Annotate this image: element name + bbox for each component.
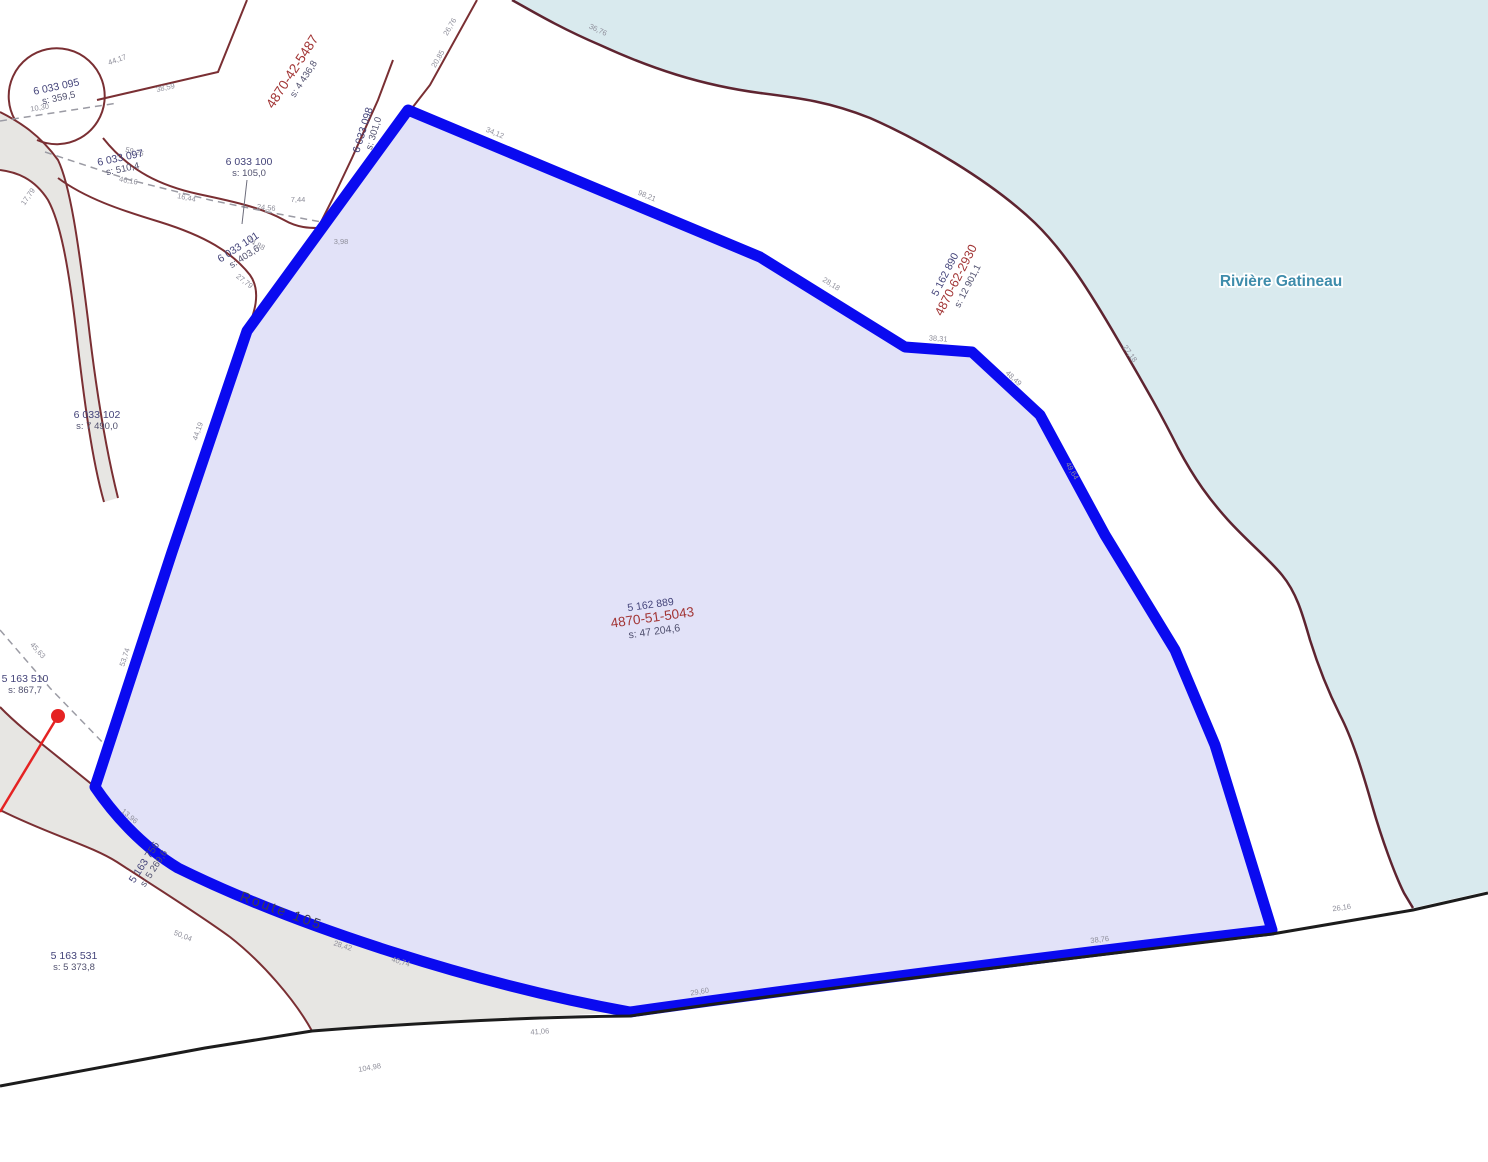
dashed-line-2 — [45, 152, 332, 224]
lot-6033100-line: s: 105,0 — [232, 168, 266, 179]
measurement-label: 26,76 — [441, 16, 458, 37]
measurement-label: 24,56 — [256, 202, 276, 213]
measurement-label: 38,31 — [928, 333, 947, 343]
measurement-label: 46,16 — [118, 174, 138, 186]
lot-5163531-line: 5 163 531 — [51, 950, 98, 962]
lot-5163531-line: s: 5 373,8 — [53, 962, 95, 973]
measurement-label: 44,19 — [190, 421, 205, 442]
measurement-label: 41,06 — [530, 1026, 549, 1036]
lot-6033102: 6 033 102s: 7 490,0 — [74, 409, 121, 432]
road-wedge-topleft — [0, 112, 118, 502]
lot-6033102-line: s: 7 490,0 — [76, 421, 118, 432]
measurement-label: 45,63 — [28, 640, 47, 660]
lot-5163510-line: s: 867,7 — [8, 685, 42, 696]
lot-6033100: 6 033 100s: 105,0 — [226, 156, 273, 179]
measurement-label: 38,59 — [155, 81, 175, 94]
measurement-label: 50,04 — [173, 928, 194, 943]
mat-4870-42-5487: 4870-42-5487s: 4 436,8 — [263, 32, 331, 117]
lot-6033100-line: 6 033 100 — [226, 156, 273, 168]
measurement-label: 26,16 — [1332, 902, 1352, 914]
lot-5162890: 5 162 8904870-62-2930s: 12 901,1 — [922, 237, 990, 323]
lot-100-leader-line — [242, 180, 247, 224]
measurement-label: 7,44 — [291, 195, 306, 204]
lot-5163510-line: 5 163 510 — [2, 673, 49, 685]
river-gatineau-label: Rivière Gatineau — [1220, 273, 1342, 290]
measurement-label: 3,98 — [334, 237, 349, 246]
lot-6033102-line: 6 033 102 — [74, 409, 121, 421]
lot-5163531: 5 163 531s: 5 373,8 — [51, 950, 98, 973]
measurement-label: 27,79 — [234, 272, 254, 291]
measurement-label: 17,79 — [19, 186, 37, 207]
measurement-label: 28,18 — [821, 275, 842, 293]
measurement-label: 104,98 — [357, 1061, 381, 1074]
lot-6033097: 6 033 097s: 510,4 — [96, 147, 147, 179]
map-canvas[interactable]: 44,1738,5926,7620,8510,3017,7959,2546,16… — [0, 0, 1488, 1162]
survey-marker-point — [51, 709, 65, 723]
measurement-label: 44,17 — [107, 52, 128, 67]
lot-5163510: 5 163 510s: 867,7 — [2, 673, 49, 696]
lot-6033101: 6 033 101s: 403,6 — [216, 230, 268, 275]
